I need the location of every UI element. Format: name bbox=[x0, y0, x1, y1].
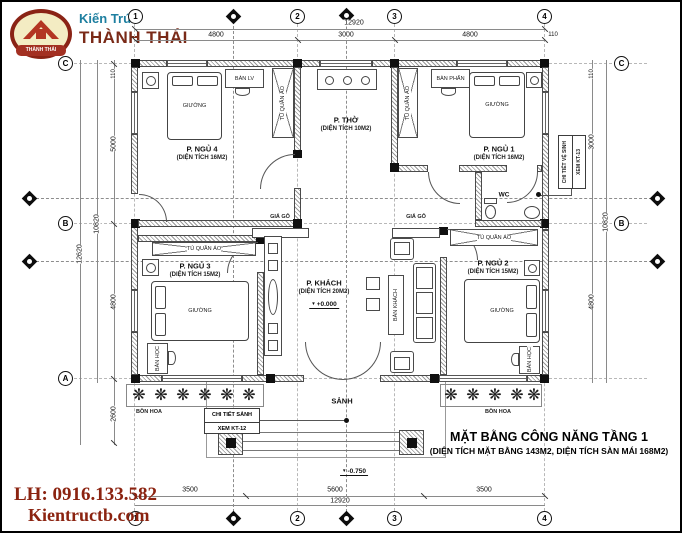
window bbox=[457, 60, 507, 67]
grid-bubble-B-left: B bbox=[58, 216, 73, 231]
grid-bubble-C-left: C bbox=[58, 56, 73, 71]
wall-segment bbox=[507, 60, 542, 67]
wall-segment bbox=[542, 134, 549, 230]
dim-text: 110 bbox=[111, 69, 117, 79]
tv-cabinet bbox=[264, 236, 282, 356]
study-desk: BÀN HỌC bbox=[147, 343, 168, 374]
dim-text: 3000 bbox=[337, 32, 355, 39]
wall-segment bbox=[440, 257, 447, 375]
room-area: (DIỆN TÍCH 10M2) bbox=[321, 126, 372, 132]
nightstand bbox=[526, 72, 542, 88]
stool bbox=[366, 277, 380, 290]
work-desk: BÀN LV bbox=[225, 69, 264, 88]
porch-detail-callout: CHI TIẾT SẢNH XEM KT-12 bbox=[204, 408, 260, 434]
wall-segment bbox=[542, 67, 549, 92]
column bbox=[390, 163, 399, 172]
bed: GIƯỜNG bbox=[167, 72, 222, 140]
grid-bubble-B-right: B bbox=[614, 216, 629, 231]
bed-label: GIƯỜNG bbox=[490, 308, 513, 314]
wall-segment bbox=[542, 332, 549, 375]
contact-phone: LH: 0916.133.582 bbox=[14, 484, 157, 506]
plant-icon: ❋ bbox=[132, 388, 145, 404]
toilet-bowl bbox=[485, 205, 496, 219]
chair bbox=[168, 351, 176, 365]
callout-cell: CHI TIẾT VỆ SINH bbox=[559, 136, 573, 188]
grid-bubble-3-bottom: 3 bbox=[387, 511, 402, 526]
grid-bubble-4-top: 4 bbox=[537, 9, 552, 24]
grid-bubble-A-left: A bbox=[58, 371, 73, 386]
bed-label: GIƯỜNG bbox=[485, 102, 508, 108]
window bbox=[542, 290, 549, 332]
wall-segment bbox=[131, 220, 138, 290]
wardrobe: TỦ QUẦN ÁO bbox=[450, 229, 538, 246]
dressing-table: BÀN PHẤN bbox=[431, 69, 470, 88]
nightstand bbox=[524, 260, 540, 276]
callout-leader-dot bbox=[536, 192, 541, 197]
wardrobe: TỦ QUẦN ÁO bbox=[152, 242, 256, 256]
plant-icon: ❋ bbox=[488, 388, 501, 404]
stool bbox=[366, 298, 380, 311]
section-line-horizontal bbox=[36, 261, 652, 262]
column bbox=[540, 374, 549, 383]
dim-text: 3500 bbox=[181, 487, 199, 494]
sink bbox=[524, 206, 540, 219]
section-marker-icon bbox=[22, 191, 38, 207]
dimension-line bbox=[135, 40, 545, 41]
window bbox=[439, 375, 527, 382]
plant-icon: ❋ bbox=[176, 388, 189, 404]
drawing-subtitle: (DIỆN TÍCH MẶT BẰNG 143M2, DIỆN TÍCH SÀN… bbox=[430, 446, 669, 456]
sofa bbox=[413, 263, 436, 343]
coffee-table-label: BÀN KHÁCH bbox=[393, 288, 399, 322]
wardrobe: TỦ QUẦN ÁO bbox=[398, 68, 418, 138]
dimension-line bbox=[592, 60, 593, 383]
room-area: (DIỆN TÍCH 16M2) bbox=[177, 155, 228, 161]
dimension-line bbox=[135, 505, 545, 506]
callout-line2: XEM KT-13 bbox=[576, 148, 582, 176]
toilet bbox=[484, 198, 497, 204]
plant-icon: ❋ bbox=[527, 388, 540, 404]
wall-segment bbox=[475, 220, 542, 227]
window bbox=[131, 92, 138, 134]
wall-segment bbox=[131, 134, 138, 194]
dimension-line bbox=[135, 29, 545, 30]
wall-segment bbox=[131, 67, 138, 92]
dim-text: 12920 bbox=[343, 20, 364, 27]
wall-segment bbox=[398, 165, 428, 172]
room-area: (DIỆN TÍCH 20M2) bbox=[299, 289, 350, 295]
wall-segment bbox=[391, 67, 398, 165]
wardrobe-label: TỦ QUẦN ÁO bbox=[405, 85, 411, 121]
room-area: (DIỆN TÍCH 16M2) bbox=[474, 155, 525, 161]
dim-text: 10820 bbox=[94, 214, 101, 233]
room-name: SẢNH bbox=[331, 397, 352, 406]
room-area: (DIỆN TÍCH 15M2) bbox=[170, 272, 221, 278]
grid-bubble-2-bottom: 2 bbox=[290, 511, 305, 526]
window bbox=[162, 375, 242, 382]
section-line-horizontal bbox=[36, 198, 652, 199]
section-marker-icon bbox=[22, 254, 38, 270]
drawing-title: MẶT BẰNG CÔNG NĂNG TẦNG 1 bbox=[450, 430, 648, 444]
wardrobe-label: TỦ QUẦN ÁO bbox=[477, 235, 511, 241]
dim-text: 2600 bbox=[111, 406, 118, 422]
wall-segment bbox=[459, 165, 507, 172]
bed-label: GIƯỜNG bbox=[188, 308, 211, 314]
plant-icon: ❋ bbox=[242, 388, 255, 404]
dressing-table-label: BÀN PHẤN bbox=[436, 76, 464, 82]
room-name: P. NGỦ 3 bbox=[179, 262, 210, 271]
callout-line1: CHI TIẾT SẢNH bbox=[205, 409, 259, 423]
door-arc bbox=[260, 154, 295, 189]
dimension-line bbox=[114, 60, 115, 445]
room-name: WC bbox=[499, 192, 510, 199]
dim-text: 3000 bbox=[589, 134, 596, 150]
study-desk-label: BÀN HỌC bbox=[527, 346, 533, 373]
wardrobe: TỦ QUẦN ÁO bbox=[272, 68, 294, 138]
wall-segment bbox=[542, 230, 549, 290]
entrance-steps bbox=[243, 432, 399, 459]
grid-bubble-4-bottom: 4 bbox=[537, 511, 552, 526]
column bbox=[293, 219, 302, 228]
wood-shelf-label: GIÁ GỖ bbox=[268, 214, 292, 220]
armchair bbox=[390, 238, 414, 260]
logo-emblem: THÀNH THÁI bbox=[10, 9, 72, 59]
callout-line2: XEM KT-12 bbox=[205, 423, 259, 435]
column bbox=[131, 374, 140, 383]
wc-detail-callout: CHI TIẾT VỆ SINH XEM KT-13 bbox=[558, 135, 586, 189]
window bbox=[542, 92, 549, 134]
wall-segment bbox=[294, 67, 301, 154]
callout-leader-dot bbox=[344, 418, 349, 423]
logo-banner: THÀNH THÁI bbox=[16, 45, 66, 56]
dim-text: 110 bbox=[589, 69, 595, 79]
wall-segment bbox=[475, 172, 482, 220]
section-marker-icon bbox=[650, 254, 666, 270]
altar-table bbox=[317, 69, 377, 90]
window bbox=[167, 60, 207, 67]
wall-segment bbox=[207, 60, 320, 67]
section-marker-icon bbox=[339, 511, 355, 527]
callout-leader bbox=[540, 195, 572, 196]
entrance-door-arc bbox=[343, 342, 381, 380]
bed-label: GIƯỜNG bbox=[183, 103, 206, 109]
room-name: P. NGỦ 4 bbox=[186, 145, 217, 154]
coffee-table: BÀN KHÁCH bbox=[388, 275, 404, 335]
chair bbox=[235, 88, 250, 96]
armchair bbox=[390, 351, 414, 373]
section-marker-icon bbox=[226, 9, 242, 25]
flower-bed-label: BỒN HOA bbox=[485, 409, 511, 415]
bed: GIƯỜNG bbox=[464, 279, 540, 343]
wall-segment bbox=[131, 332, 138, 375]
callout-line1: CHI TIẾT VỆ SINH bbox=[562, 140, 568, 184]
room-name: P. THỜ bbox=[334, 116, 359, 125]
dim-text: 5000 bbox=[111, 136, 118, 152]
wall-segment bbox=[138, 235, 264, 242]
plant-icon: ❋ bbox=[220, 388, 233, 404]
dim-text: 12620 bbox=[77, 244, 84, 263]
door-arc bbox=[428, 172, 460, 204]
wardrobe-label: TỦ QUẦN ÁO bbox=[187, 246, 221, 252]
dim-text: 12920 bbox=[329, 498, 350, 505]
dim-text: 10820 bbox=[603, 212, 610, 231]
section-marker-icon bbox=[650, 191, 666, 207]
room-area: (DIỆN TÍCH 15M2) bbox=[468, 269, 519, 275]
window bbox=[131, 290, 138, 332]
wood-shelf-label: GIÁ GỖ bbox=[404, 214, 428, 220]
logo-monogram-icon bbox=[19, 17, 63, 43]
chair bbox=[511, 353, 519, 366]
callout-cell: XEM KT-13 bbox=[573, 136, 585, 188]
wall-segment bbox=[537, 165, 542, 172]
dim-text: 5600 bbox=[326, 487, 344, 494]
level-mark: -0.750 bbox=[340, 468, 368, 476]
room-name: P. KHÁCH bbox=[306, 279, 341, 288]
nightstand bbox=[142, 259, 159, 276]
wardrobe-label: TỦ QUẦN ÁO bbox=[280, 85, 286, 121]
bed: GIƯỜNG bbox=[151, 281, 249, 341]
wall-segment bbox=[294, 188, 301, 220]
wall-segment bbox=[138, 375, 162, 382]
contact-website: Kientructb.com bbox=[28, 505, 149, 526]
dim-text: 4800 bbox=[461, 32, 479, 39]
plant-icon: ❋ bbox=[466, 388, 479, 404]
dim-text: 4800 bbox=[589, 294, 596, 310]
floor-plan-sheet: THÀNH THÁI Kiến Trúc THÀNH THÁI 1 2 3 4 … bbox=[0, 0, 682, 533]
plant-icon: ❋ bbox=[444, 388, 457, 404]
dim-text: 4800 bbox=[111, 294, 118, 310]
section-marker-icon bbox=[226, 511, 242, 527]
wall-segment bbox=[372, 60, 457, 67]
flower-bed-label: BỒN HOA bbox=[136, 409, 162, 415]
grid-bubble-2-top: 2 bbox=[290, 9, 305, 24]
grid-bubble-C-right: C bbox=[614, 56, 629, 71]
grid-bubble-1-top: 1 bbox=[128, 9, 143, 24]
level-mark: +0.000 bbox=[309, 301, 339, 309]
room-name: P. NGỦ 2 bbox=[477, 259, 508, 268]
bed: GIƯỜNG bbox=[469, 72, 525, 138]
plant-icon: ❋ bbox=[154, 388, 167, 404]
callout-leader bbox=[260, 420, 346, 421]
chair bbox=[441, 88, 456, 96]
plant-icon: ❋ bbox=[198, 388, 211, 404]
porch-column bbox=[399, 430, 424, 455]
plant-icon: ❋ bbox=[510, 388, 523, 404]
grid-bubble-3-top: 3 bbox=[387, 9, 402, 24]
wall-segment bbox=[138, 60, 167, 67]
window bbox=[320, 60, 372, 67]
entrance-door-arc bbox=[305, 342, 343, 380]
dim-text: 4800 bbox=[207, 32, 225, 39]
study-desk-label: BÀN HỌC bbox=[155, 345, 161, 372]
dim-text: 3500 bbox=[475, 487, 493, 494]
study-desk: BÀN HỌC bbox=[519, 346, 540, 374]
work-desk-label: BÀN LV bbox=[235, 76, 254, 82]
dim-text: 110 bbox=[547, 32, 559, 38]
nightstand bbox=[142, 72, 159, 89]
room-name: P. NGỦ 1 bbox=[483, 145, 514, 154]
wall-segment bbox=[257, 272, 264, 375]
wood-shelf bbox=[392, 228, 440, 238]
